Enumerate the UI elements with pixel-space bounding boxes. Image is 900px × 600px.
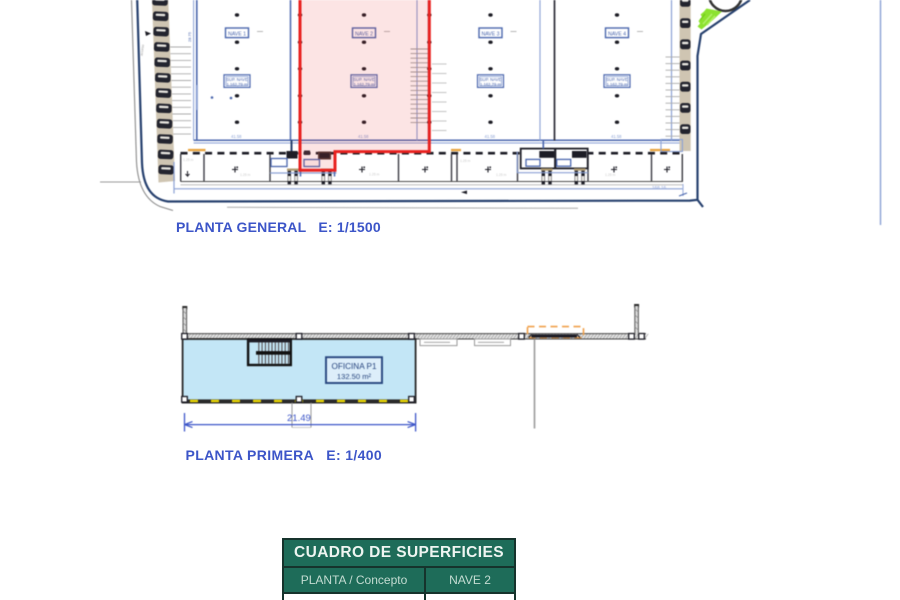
svg-text:132.50 m²: 132.50 m²	[337, 372, 372, 381]
svg-text:21.49: 21.49	[287, 413, 311, 424]
svg-text:NAVE 1: NAVE 1	[228, 31, 246, 37]
svg-text:168.16: 168.16	[652, 185, 666, 190]
svg-text:1.25 m: 1.25 m	[460, 159, 471, 163]
svg-text:1.162,79 m: 1.162,79 m	[227, 82, 248, 87]
svg-text:41.58: 41.58	[485, 134, 496, 139]
svg-text:28.75: 28.75	[187, 31, 192, 42]
svg-text:1.25 m: 1.25 m	[496, 173, 507, 177]
svg-text:1.25 m: 1.25 m	[183, 158, 194, 162]
svg-text:1.162,79 m: 1.162,79 m	[607, 82, 628, 87]
svg-text:41.58: 41.58	[231, 134, 242, 139]
svg-text:OFICINA P1: OFICINA P1	[331, 362, 376, 371]
svg-text:1.25 m: 1.25 m	[369, 173, 380, 177]
svg-text:41.58: 41.58	[611, 134, 622, 139]
svg-text:NAVE 3: NAVE 3	[481, 31, 499, 37]
svg-text:1.25 m: 1.25 m	[240, 173, 251, 177]
svg-text:1.162,79 m: 1.162,79 m	[480, 82, 501, 87]
svg-text:acceso: acceso	[140, 44, 146, 56]
svg-text:NAVE 4: NAVE 4	[608, 31, 626, 37]
svg-text:1.25 m: 1.25 m	[605, 173, 616, 177]
